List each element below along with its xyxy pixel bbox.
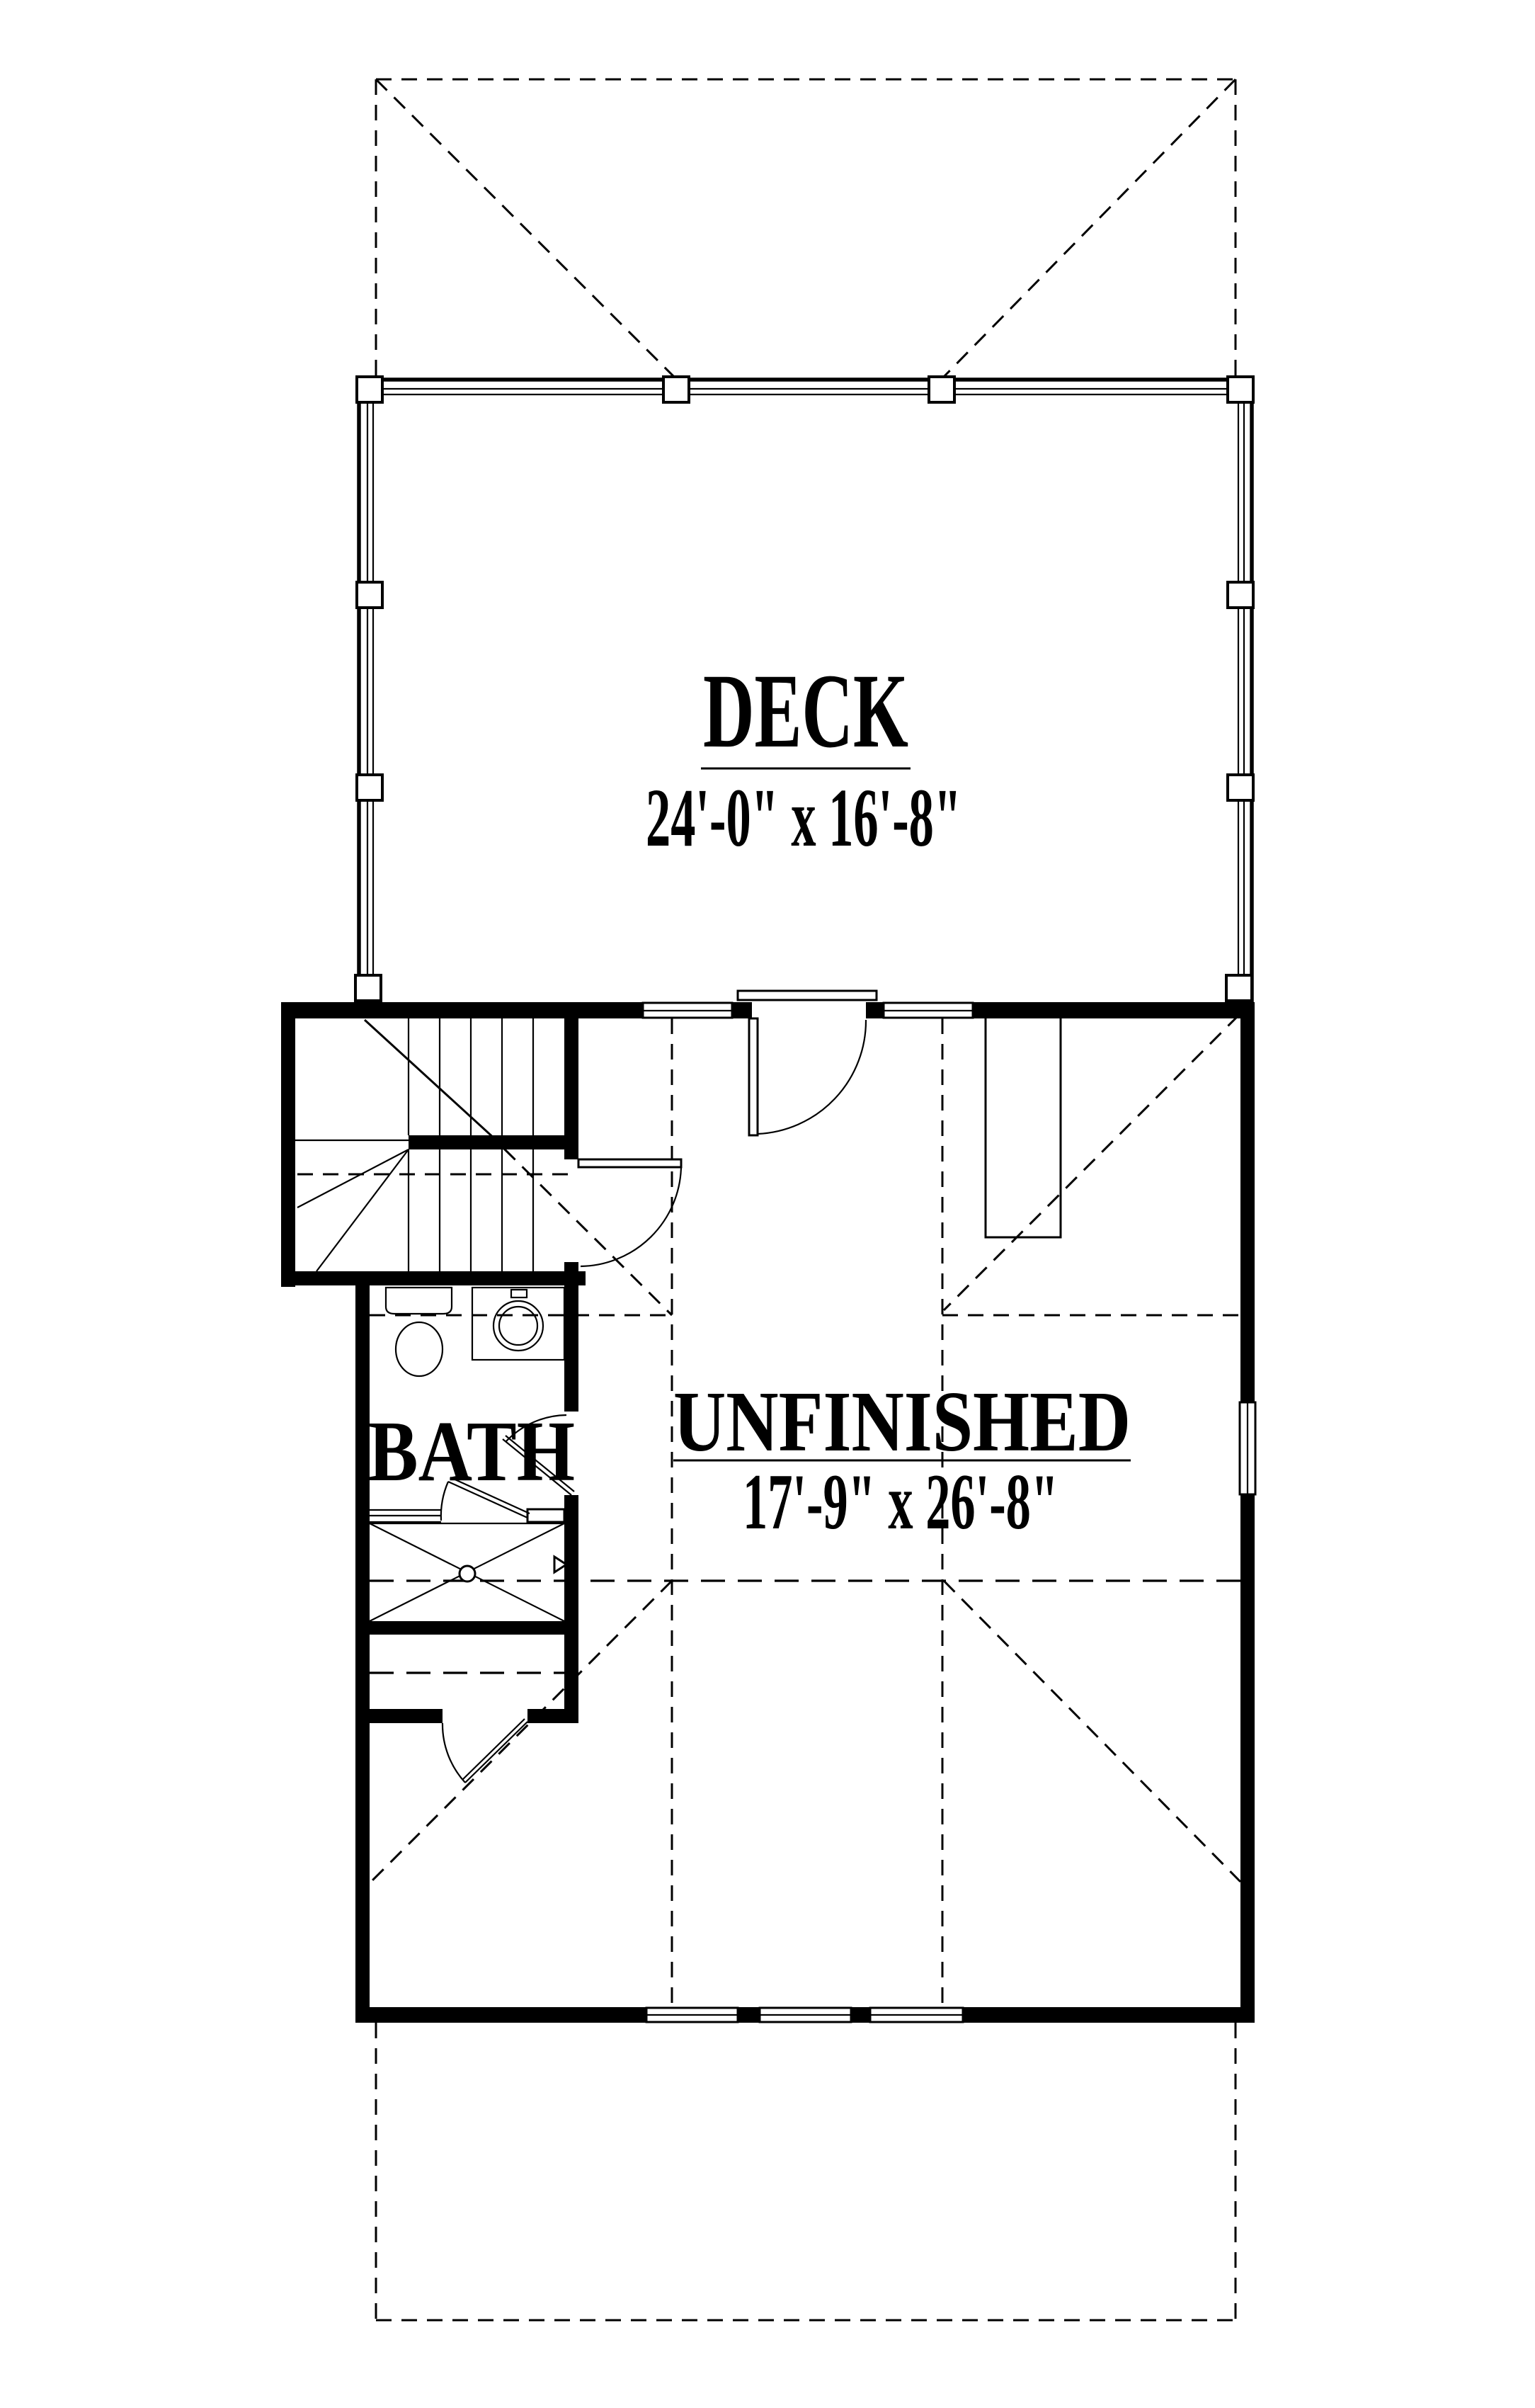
shower-track [370,1509,564,1522]
stair-winder [297,1149,409,1208]
wall-stair-left [281,1002,295,1287]
roof-hip-upper-right [944,1015,1239,1310]
sink [386,1288,452,1314]
wall-bath-left [355,1271,370,2023]
toilet [396,1322,443,1376]
unfinished-dimensions: 17'-9" x 26'-8" [743,1458,1058,1546]
wall-bottom [963,2007,1255,2023]
roof-hip-right [942,79,1236,379]
deck-door [738,991,877,1135]
deck-dimensions: 24'-0" x 16'-8" [646,771,961,864]
window-top-2 [884,1003,973,1018]
wall-bottom [355,2007,646,2023]
wall-right [1240,1002,1255,1402]
unfinished-label: UNFINISHED [673,1374,1131,1470]
washer [472,1288,564,1360]
roof-hip-left [376,79,676,379]
closet-door-leaf [465,1722,527,1783]
deck-post [357,377,382,402]
deck-label: DECK [703,652,908,770]
shower-pan [370,1523,564,1621]
wall-top [281,1002,643,1018]
closet-door [443,1719,527,1783]
deck-post [1228,377,1253,402]
bath-label: BATH [368,1404,575,1499]
window-right [1240,1402,1255,1494]
window-bottom-3 [870,2008,963,2022]
floor-plan-canvas: DECK 24'-0" x 16'-8" UNFINISHED 17'-9" x… [0,0,1535,2408]
deck-post [357,775,382,800]
closet-door-leaf [462,1719,525,1780]
wall-bath-right [564,1495,578,1723]
roof-overhang-bottom [376,2023,1236,2320]
window-bottom-2 [760,2008,851,2022]
floor-plan-page: DECK 24'-0" x 16'-8" UNFINISHED 17'-9" x… [0,0,1535,2408]
wall-bottom [738,2007,760,2023]
deck-post [1226,975,1252,1001]
stair-door [578,1159,681,1266]
stair-door-arc [581,1167,681,1266]
window-top-1 [643,1003,732,1018]
deck-post [929,377,954,402]
window-bottom-1 [646,2008,738,2022]
shower-drain [460,1566,475,1581]
deck-post [357,582,382,608]
wall-top [973,1002,1255,1018]
stair-break-line [365,1020,504,1147]
wall-stair-right-stub [564,1262,578,1271]
deck-post [1228,582,1253,608]
wall-top [866,1002,884,1018]
roof-hip-stair [504,1149,672,1315]
deck-door-leaf [749,1018,758,1135]
deck-post [1228,775,1253,800]
roof-hip-lower-right [944,1581,1240,1882]
wall-right [1240,1494,1255,2023]
deck-door-threshold [738,991,877,1000]
deck-door-arc [758,1020,866,1134]
wall-closet-bottom [355,1709,443,1723]
stair-winder [316,1149,409,1271]
wall-top [732,1002,752,1018]
stair-door-leaf [578,1159,681,1167]
wall-shower-bottom [355,1621,578,1635]
wall-bottom [851,2007,870,2023]
wall-stair-bottom [281,1271,586,1285]
deck-post [663,377,689,402]
roof-overhang-top [376,79,1236,379]
closet-door-arc [443,1723,465,1783]
wall-closet-bottom-stub [527,1709,578,1723]
deck-post [355,975,381,1001]
wall-bath-right [564,1285,578,1412]
